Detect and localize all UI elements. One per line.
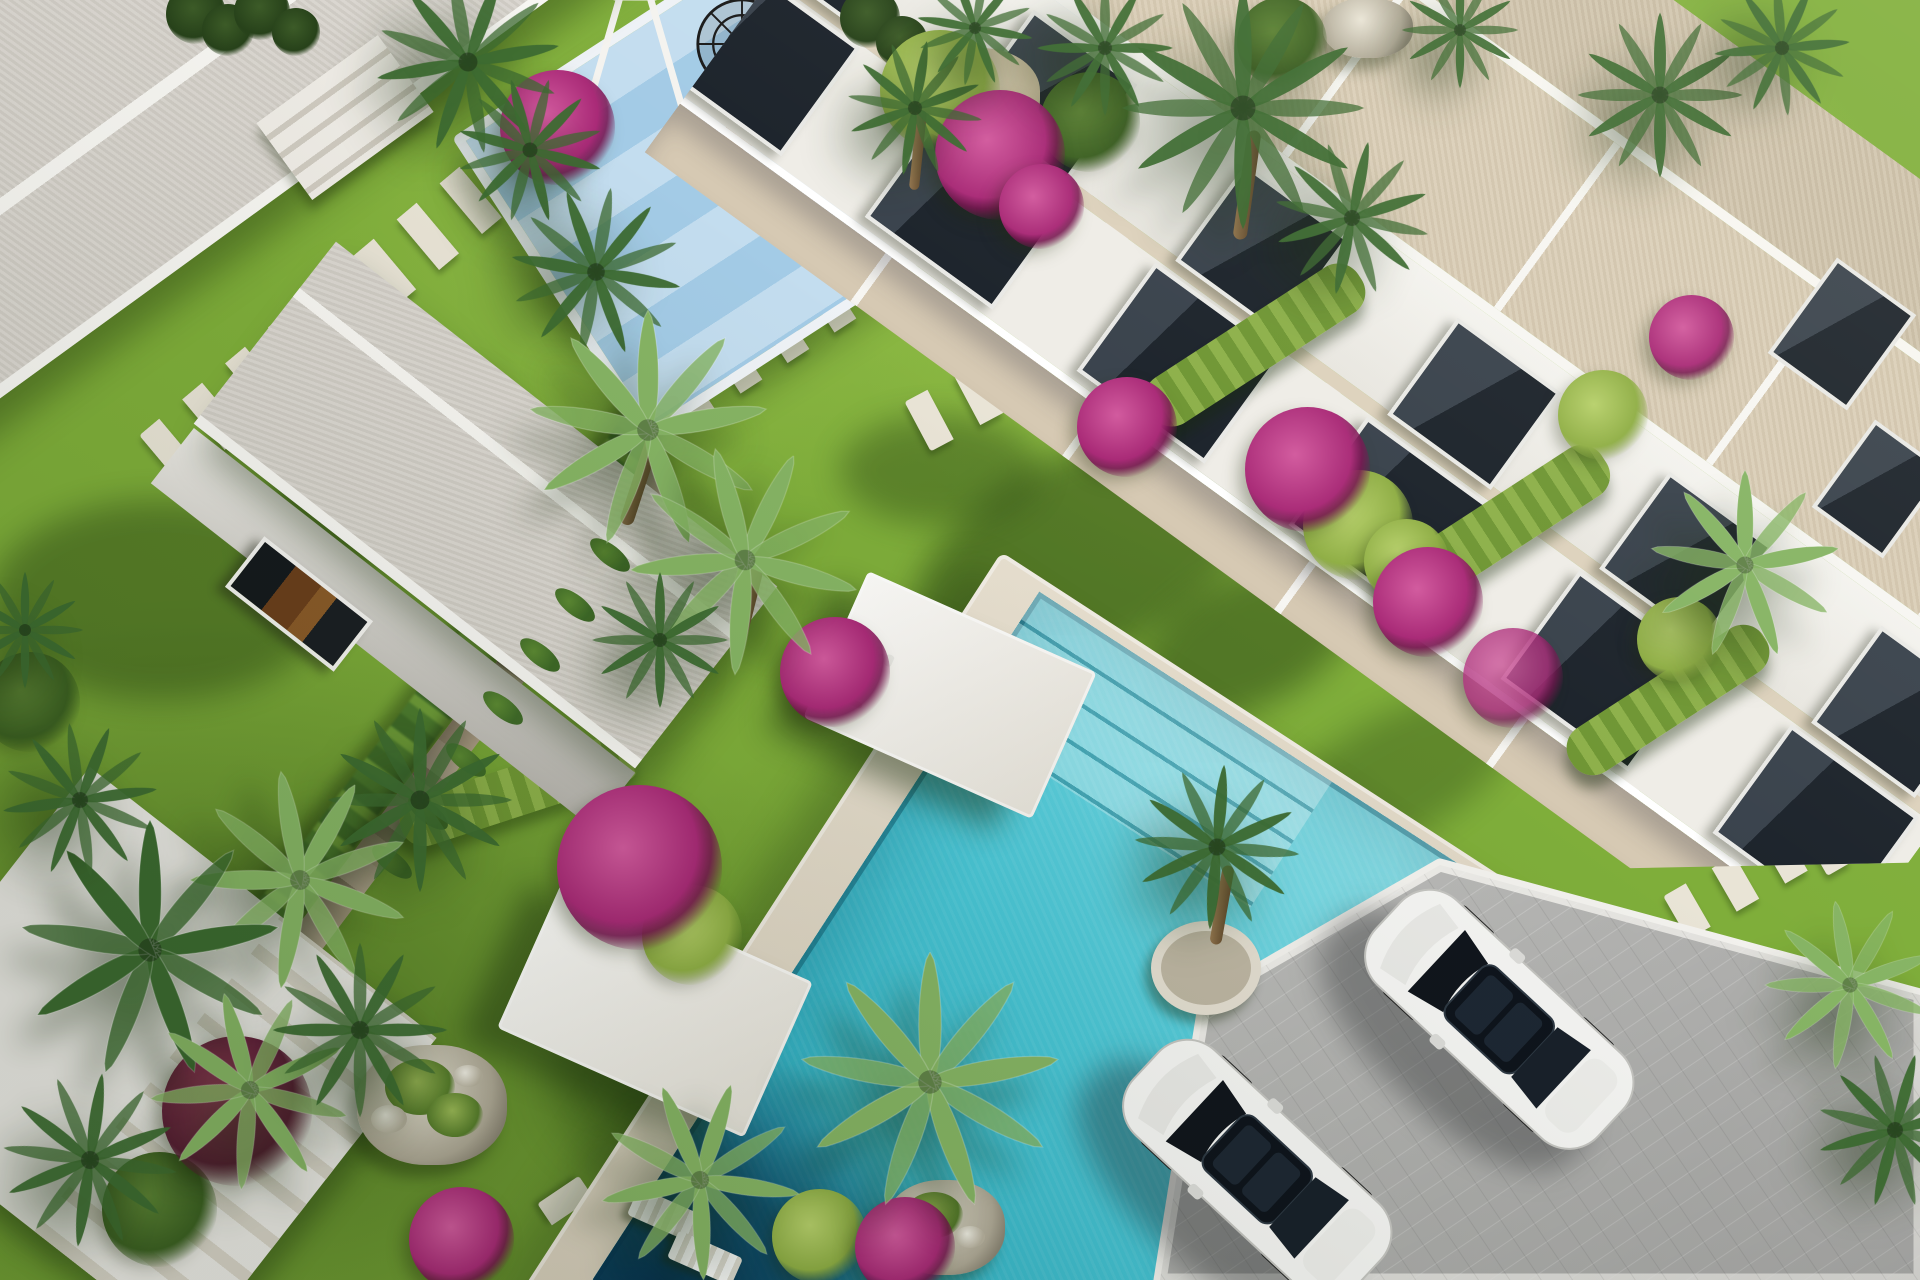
palm-tree — [1650, 470, 1840, 660]
white-stone — [955, 1226, 985, 1248]
palm-tree — [1257, 123, 1447, 313]
rock-plants — [427, 1093, 483, 1137]
palm-tree — [800, 952, 1060, 1212]
palm-tree — [0, 1058, 192, 1261]
palm-planter-ring — [1151, 921, 1261, 1015]
palm-tree — [0, 570, 85, 690]
palm-tree — [590, 570, 730, 710]
palm-tree — [1752, 887, 1920, 1084]
aerial-render-scene — [0, 0, 1920, 1280]
palm-tree — [1125, 755, 1309, 939]
palm-tree — [1400, 0, 1520, 90]
